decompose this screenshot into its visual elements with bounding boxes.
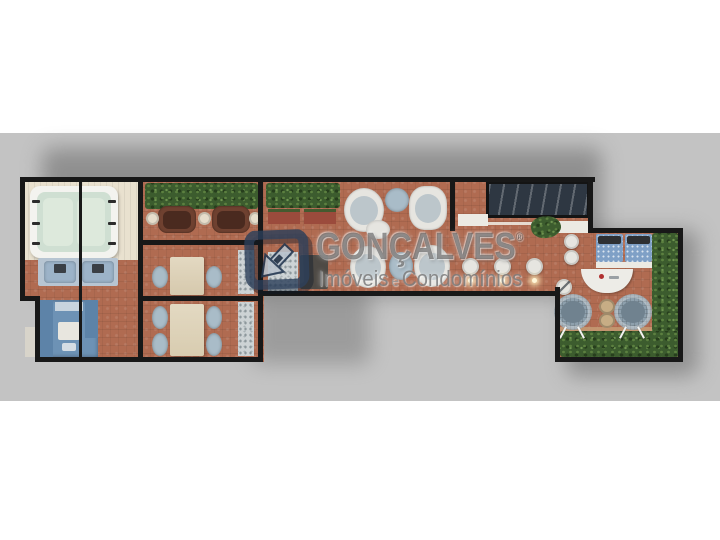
hedge-planter [266,183,340,208]
wall-segment [20,177,595,182]
daybed [625,234,652,262]
dining-chair [152,306,168,329]
wall-segment [678,228,683,362]
bar-ledge [458,214,488,226]
jacuzzi-water [37,192,111,252]
dining-chair [152,266,168,288]
kitchen-cabinets [40,300,98,357]
dining-table [170,304,204,356]
lounger [82,261,114,283]
lounger [44,261,76,283]
dining-chair [206,306,222,329]
bar-stool [564,234,579,249]
round-lounge-chair [409,186,447,230]
wicker-sofa [158,206,196,233]
brand-name: GONÇALVES® [316,226,523,269]
kitchen-cabinet-left [40,300,53,357]
side-table [198,212,211,225]
watermark: GONÇALVES® ImóveiseCondomínios [240,226,540,306]
daybed-ledge [596,262,652,268]
kitchen-table [58,322,80,340]
brick-planter [304,209,336,224]
dining-chair [206,333,222,356]
daybed-pillow [627,236,650,244]
jacuzzi-jet [32,200,40,203]
kitchen-cabinet-right [85,300,98,338]
wall-segment [555,287,560,362]
dining-chair [152,333,168,356]
jacuzzi-seat [43,198,73,246]
stone-counter [238,302,254,356]
figure8-side-table [599,313,615,328]
chair-cushion [415,194,442,223]
jacuzzi [30,186,118,258]
floorplan-render: GONÇALVES® ImóveiseCondomínios [0,0,720,540]
side-table [146,212,159,225]
wall-segment [555,357,683,362]
wall-segment [588,228,683,233]
table-item [609,276,619,279]
glass-partition [79,180,82,360]
egg-chair [614,294,652,330]
egg-chair-seat [621,301,645,323]
kitchen-stool [62,343,76,351]
watermark-logo [243,229,315,295]
dining-table [170,257,204,295]
jacuzzi-jet [108,222,116,225]
bar-ledge [558,221,590,233]
wall-segment [138,177,143,362]
wall-segment [35,357,263,362]
jacuzzi-jet [32,222,40,225]
jacuzzi-jet [32,242,40,245]
lounger-tray [92,264,104,273]
table-item [599,274,604,279]
skylight-glass [486,181,590,218]
lounger-tray [54,264,66,273]
daybed [596,234,623,262]
round-pouf [385,188,409,212]
jacuzzi-jet [108,200,116,203]
jacuzzi-jet [108,242,116,245]
egg-chair-seat [561,301,585,323]
daybed-pillow [598,236,621,244]
registered-mark: ® [516,230,523,244]
dining-chair [206,266,222,288]
wall-segment [450,181,455,231]
logo-arrow [253,239,298,285]
brick-planter [268,209,300,224]
bar-stool [564,250,579,265]
wall-segment [588,177,593,233]
sofa-cushion [163,211,191,229]
figure8-side-table [599,299,615,314]
brand-tagline: ImóveiseCondomínios [318,266,522,292]
wall-segment [35,296,40,360]
wall-segment [20,177,25,301]
